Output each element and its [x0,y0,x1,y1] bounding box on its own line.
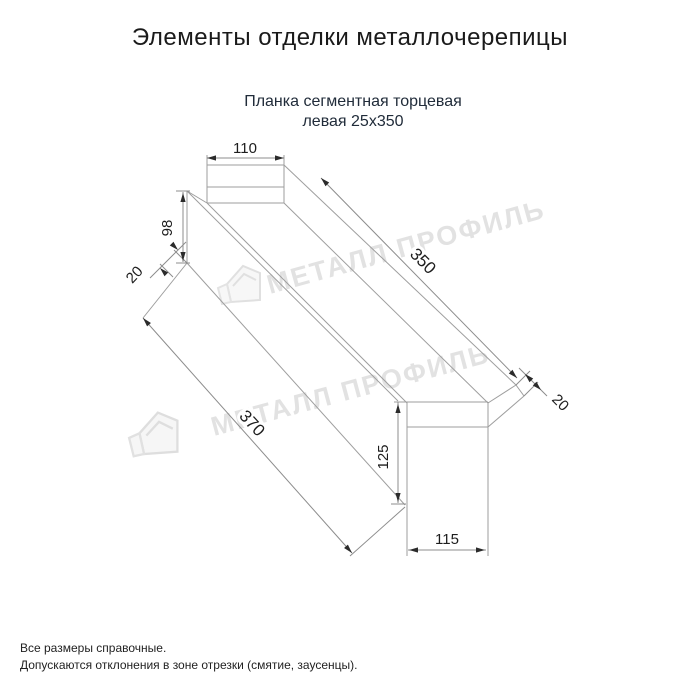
dim-right-fold: 20 [548,391,572,415]
technical-drawing: МЕТАЛЛ ПРОФИЛЬ МЕТАЛЛ ПРОФИЛЬ [0,0,700,700]
metall-profil-house-logo [129,413,177,457]
dim-left-fold: 20 [123,263,147,287]
dim-end-height: 125 [375,444,392,469]
watermark-2: МЕТАЛЛ ПРОФИЛЬ [129,338,493,456]
footnote-line1: Все размеры справочные. [20,640,357,657]
dim-top-width: 110 [233,140,257,157]
metall-profil-house-logo [218,266,260,304]
watermark-1: МЕТАЛЛ ПРОФИЛЬ [218,194,549,304]
dim-end-width: 115 [435,531,459,548]
dim-side-height: 98 [159,220,176,237]
footnotes: Все размеры справочные. Допускаются откл… [20,640,357,674]
watermark-text: МЕТАЛЛ ПРОФИЛЬ [264,194,549,300]
footnote-line2: Допускаются отклонения в зоне отрезки (с… [20,657,357,674]
